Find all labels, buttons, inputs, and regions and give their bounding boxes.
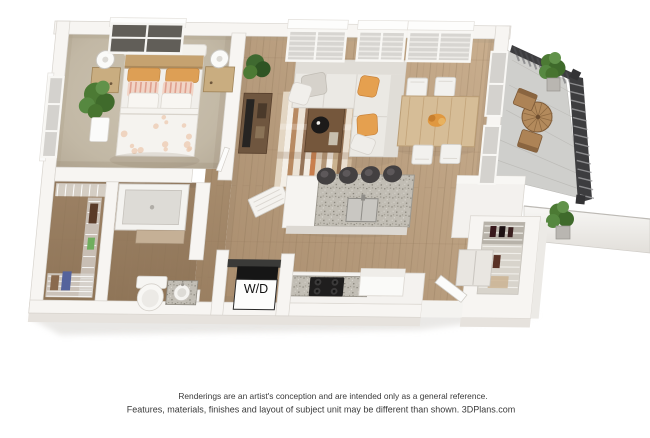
svg-text:Renderings are an artist's con: Renderings are an artist's conception an… — [178, 391, 487, 401]
svg-text:Features, materials, finishes: Features, materials, finishes and layout… — [127, 405, 516, 415]
svg-text:W/D: W/D — [244, 282, 268, 296]
